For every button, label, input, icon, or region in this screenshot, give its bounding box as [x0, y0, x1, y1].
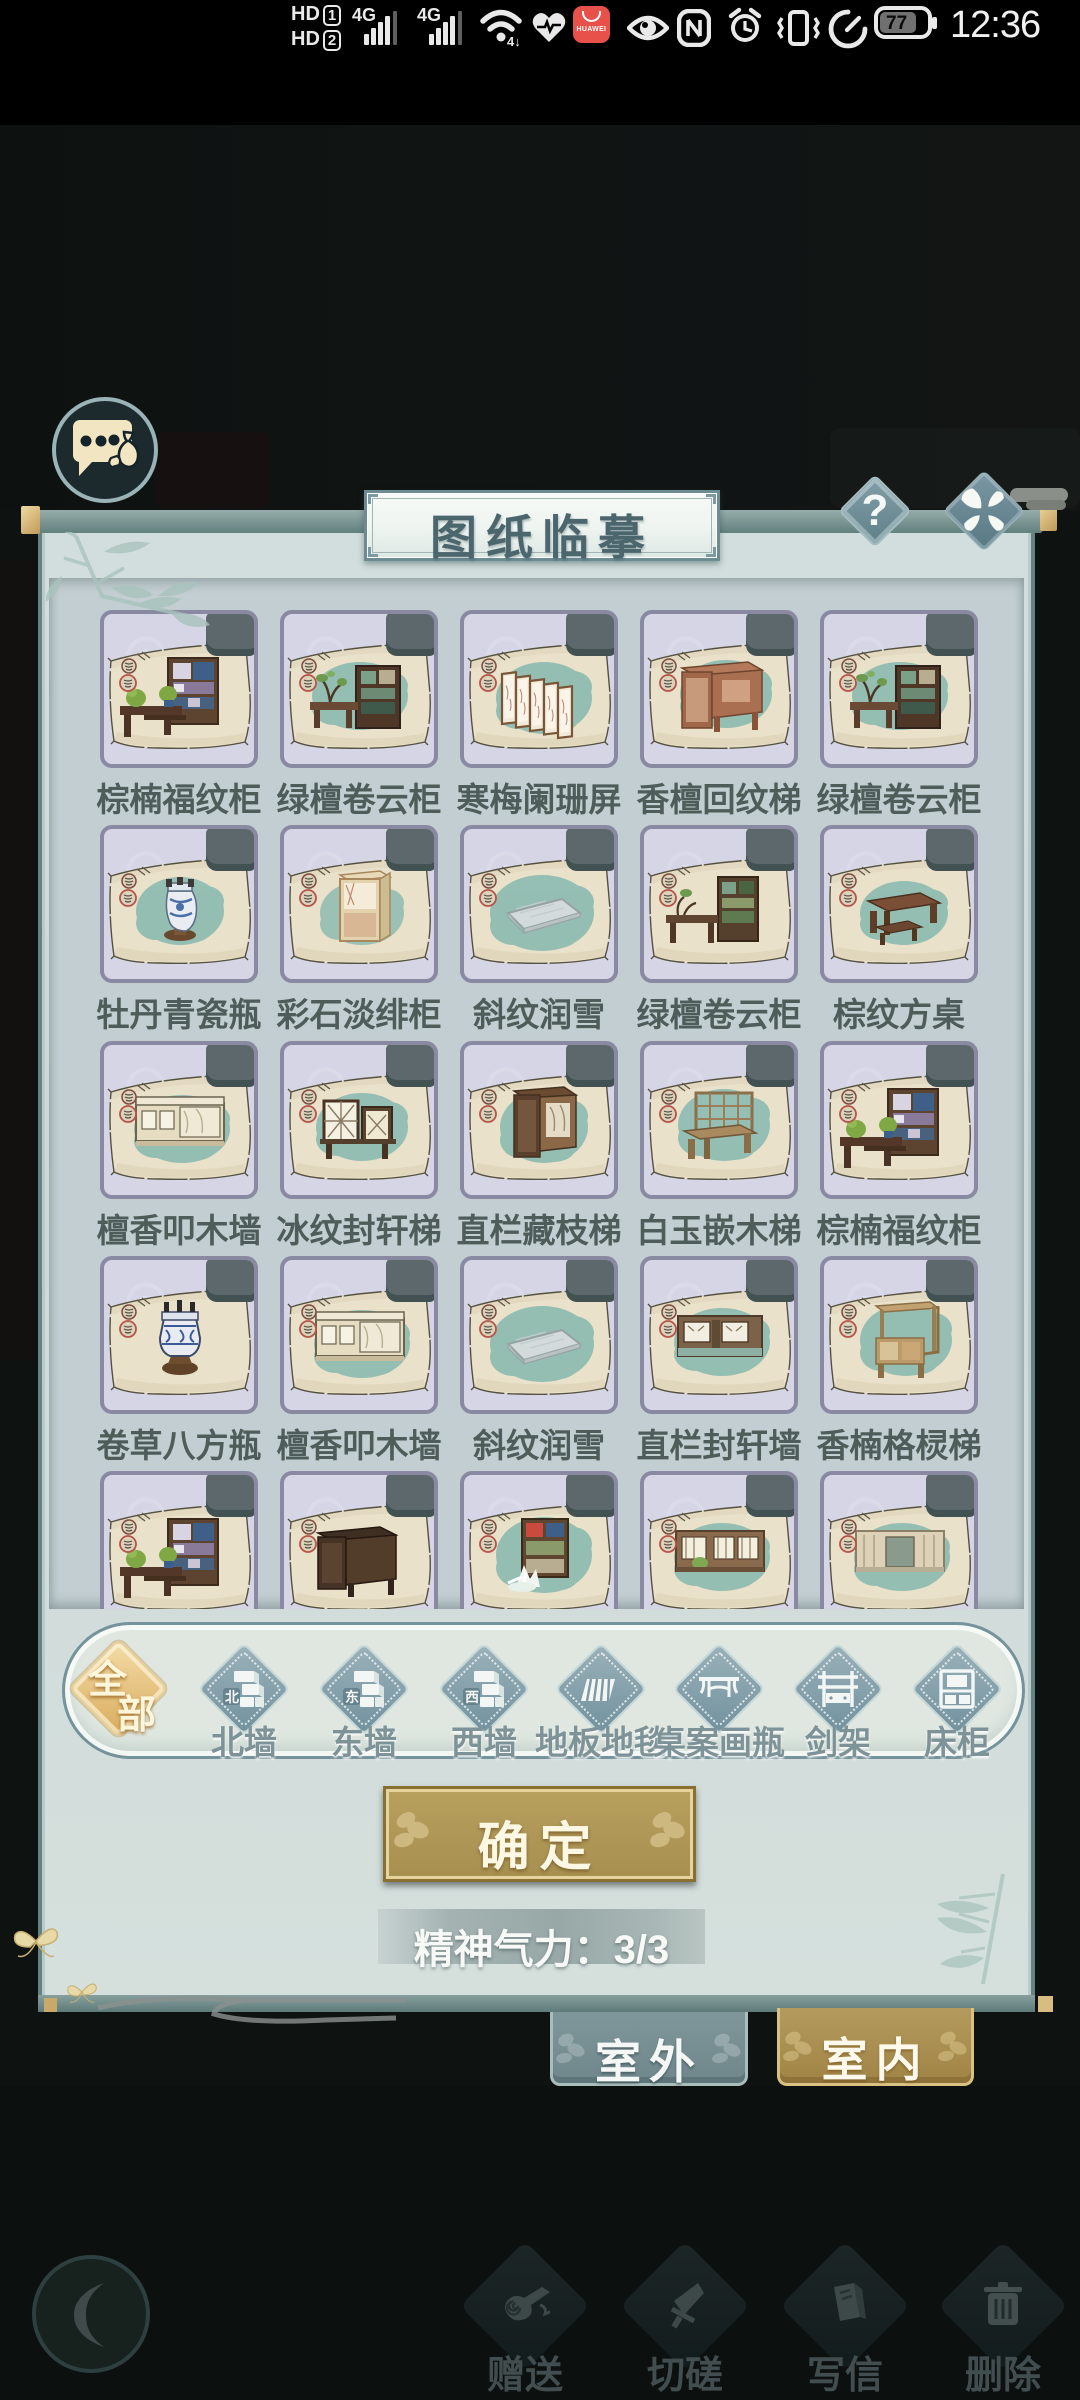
- svg-text:4G: 4G: [352, 5, 376, 25]
- svg-text:4↓: 4↓: [507, 34, 521, 48]
- svg-text:4G: 4G: [417, 5, 441, 25]
- svg-text:北: 北: [225, 1690, 239, 1706]
- svg-text:77: 77: [886, 13, 907, 34]
- svg-text:东: 东: [345, 1689, 359, 1706]
- svg-text:西: 西: [465, 1690, 479, 1706]
